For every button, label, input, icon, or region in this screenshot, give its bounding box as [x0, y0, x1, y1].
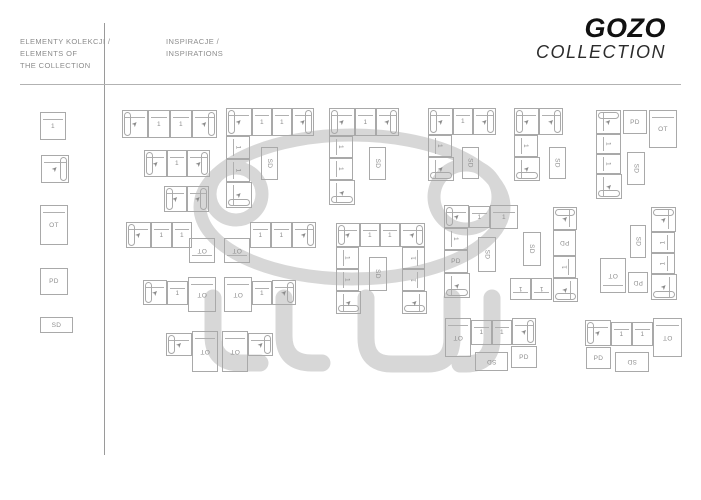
orientation-arrow-icon: ➤ — [534, 105, 567, 138]
module-seat: 1 — [596, 134, 621, 154]
module-label: 1 — [654, 232, 673, 254]
module-arm: ➤ — [428, 108, 453, 135]
module-label: SD — [362, 156, 393, 171]
orientation-arrow-icon: ➤ — [287, 106, 320, 139]
module-label: 1 — [491, 206, 517, 228]
orientation-arrow-icon: ➤ — [425, 153, 458, 186]
module-seat: 1 — [336, 247, 359, 269]
module-label: 1 — [152, 223, 171, 247]
module-label: PD — [587, 348, 610, 368]
orientation-arrow-icon: ➤ — [288, 219, 321, 252]
module-label: 1 — [493, 321, 511, 344]
module-seat: 1 — [40, 112, 66, 140]
module-label: 1 — [41, 113, 65, 139]
module-arm: ➤ — [336, 223, 360, 247]
module-sd: SD — [369, 147, 386, 180]
collection-name: GOZO — [536, 14, 666, 42]
module-label: 1 — [251, 223, 270, 247]
module-label: 1 — [633, 323, 652, 345]
module-arm: ➤ — [402, 291, 427, 314]
module-label: SD — [254, 156, 285, 171]
orientation-arrow-icon: ➤ — [37, 151, 74, 188]
orientation-arrow-icon: ➤ — [333, 287, 364, 318]
module-arm: ➤ — [192, 110, 217, 138]
header-divider-line — [20, 84, 681, 85]
orientation-arrow-icon: ➤ — [581, 316, 615, 350]
module-label: SD — [471, 247, 504, 263]
module-seat: 1 — [360, 223, 380, 247]
module-label: OT — [650, 111, 676, 147]
module-arm: ➤ — [292, 108, 314, 136]
module-seat: 1 — [148, 110, 170, 138]
module-pouf: PD — [623, 110, 647, 134]
module-seat: 1 — [632, 322, 653, 346]
module-label: 1 — [470, 207, 489, 227]
module-sd: SD — [549, 147, 566, 179]
module-label: PD — [512, 347, 536, 367]
module-label: 1 — [446, 228, 466, 250]
module-arm: ➤ — [444, 205, 469, 228]
module-sd: SD — [462, 147, 479, 179]
orientation-arrow-icon: ➤ — [440, 269, 473, 302]
orientation-arrow-icon: ➤ — [468, 105, 501, 138]
module-label: 1 — [404, 248, 424, 269]
module-label: SD — [543, 156, 573, 171]
module-arm: ➤ — [292, 222, 316, 248]
module-label: SD — [456, 156, 486, 171]
module-label: 1 — [228, 137, 249, 159]
module-seat: 1 — [510, 278, 531, 300]
inspirations-title: INSPIRACJE / INSPIRATIONS — [166, 36, 223, 60]
orientation-arrow-icon: ➤ — [187, 107, 222, 142]
module-seat: 1 — [651, 232, 675, 253]
sidebar-title-line: THE COLLECTION — [20, 60, 115, 72]
module-label: 1 — [253, 109, 271, 135]
module-label: 1 — [149, 111, 169, 137]
module-arm: ➤ — [553, 207, 577, 230]
module-sd: SD — [261, 147, 278, 180]
module-label: 1 — [532, 279, 551, 299]
module-arm: ➤ — [400, 223, 425, 247]
module-seat: 1 — [167, 281, 188, 305]
module-arm: ➤ — [473, 108, 496, 135]
module-seat: 1 — [226, 136, 250, 159]
module-ottoman: OT — [40, 205, 68, 245]
module-pouf: PD — [628, 272, 648, 293]
module-arm: ➤ — [248, 333, 273, 356]
orientation-arrow-icon: ➤ — [245, 329, 276, 360]
orientation-arrow-icon: ➤ — [222, 178, 256, 212]
orientation-arrow-icon: ➤ — [163, 329, 195, 361]
module-arm: ➤ — [226, 108, 252, 136]
module-arm: ➤ — [651, 207, 676, 232]
module-label: 1 — [472, 321, 491, 344]
module-arm: ➤ — [376, 108, 399, 136]
module-sd: SD — [369, 257, 387, 291]
orientation-arrow-icon: ➤ — [182, 183, 213, 214]
module-ottoman: OT — [192, 331, 218, 372]
module-arm: ➤ — [122, 110, 148, 138]
module-seat: 1 — [490, 205, 518, 229]
module-label: 1 — [338, 248, 358, 269]
sidebar-title: ELEMENTY KOLEKCJI / ELEMENTS OF THE COLL… — [20, 36, 115, 72]
module-sd: SD — [630, 225, 646, 258]
brand-block: GOZO COLLECTION — [536, 14, 666, 62]
module-pouf: PD — [511, 346, 537, 368]
module-seat: 1 — [151, 222, 172, 248]
module-seat: 1 — [471, 320, 492, 345]
module-label: 1 — [612, 323, 631, 345]
module-label: SD — [623, 235, 654, 249]
module-arm: ➤ — [596, 174, 622, 199]
collection-label: COLLECTION — [536, 42, 666, 62]
module-arm: ➤ — [329, 108, 355, 136]
inspirations-title-line: INSPIRATIONS — [166, 48, 223, 60]
module-arm: ➤ — [187, 150, 210, 177]
module-seat: 1 — [329, 136, 353, 158]
module-seat: 1 — [531, 278, 552, 300]
module-seat: 1 — [250, 222, 271, 248]
module-sd: SD — [478, 237, 496, 272]
module-ottoman: OT — [188, 277, 216, 312]
module-label: OT — [193, 332, 217, 371]
module-ottoman: OT — [224, 277, 252, 312]
module-arm: ➤ — [651, 274, 677, 300]
module-arm: ➤ — [226, 182, 252, 208]
module-label: SD — [476, 353, 507, 370]
module-ottoman: OT — [445, 318, 471, 357]
module-arm: ➤ — [444, 273, 470, 298]
module-seat: 1 — [402, 247, 425, 269]
module-arm: ➤ — [144, 150, 167, 177]
module-label: 1 — [168, 282, 187, 304]
module-arm: ➤ — [512, 318, 536, 345]
module-sd: SD — [627, 152, 645, 185]
module-arm: ➤ — [41, 155, 69, 183]
module-arm: ➤ — [187, 186, 209, 212]
orientation-arrow-icon: ➤ — [268, 277, 300, 309]
module-arm: ➤ — [143, 280, 167, 305]
module-label: SD — [41, 318, 72, 332]
module-arm: ➤ — [514, 157, 540, 181]
module-ottoman: OT — [224, 238, 250, 263]
module-label: OT — [654, 319, 681, 356]
module-ottoman: OT — [222, 331, 248, 372]
module-label: OT — [601, 259, 625, 292]
orientation-arrow-icon: ➤ — [550, 274, 582, 306]
module-label: PD — [41, 269, 67, 294]
module-label: 1 — [511, 279, 530, 299]
module-seat: 1 — [444, 228, 468, 250]
orientation-arrow-icon: ➤ — [182, 147, 215, 180]
module-ottoman: OT — [653, 318, 682, 357]
module-arm: ➤ — [585, 320, 611, 346]
module-label: PD — [624, 111, 646, 133]
module-seat: 1 — [252, 108, 272, 136]
module-seat: 1 — [611, 322, 632, 346]
module-arm: ➤ — [539, 108, 563, 135]
catalog-page: ELEMENTY KOLEKCJI / ELEMENTS OF THE COLL… — [0, 0, 701, 500]
module-arm: ➤ — [126, 222, 151, 248]
module-sd: SD — [40, 317, 73, 333]
module-arm: ➤ — [428, 157, 454, 181]
module-ottoman: OT — [649, 110, 677, 148]
module-arm: ➤ — [553, 278, 578, 302]
module-sd: SD — [523, 232, 541, 266]
module-pouf: PD — [586, 347, 611, 369]
sidebar-title-line: ELEMENTY KOLEKCJI / — [20, 36, 115, 48]
module-pouf: PD — [553, 230, 576, 256]
module-ottoman: OT — [600, 258, 626, 293]
module-label: OT — [225, 239, 249, 262]
orientation-arrow-icon: ➤ — [371, 105, 404, 138]
module-label: PD — [629, 273, 647, 292]
orientation-arrow-icon: ➤ — [647, 270, 681, 304]
orientation-arrow-icon: ➤ — [511, 153, 544, 186]
module-label: PD — [554, 231, 575, 255]
orientation-arrow-icon: ➤ — [332, 219, 363, 250]
module-sd: SD — [615, 352, 649, 372]
module-label: SD — [516, 241, 548, 257]
module-label: SD — [362, 266, 394, 282]
module-label: OT — [41, 206, 67, 244]
module-label: 1 — [331, 136, 351, 158]
orientation-arrow-icon: ➤ — [399, 287, 430, 318]
module-arm: ➤ — [272, 280, 296, 305]
inspirations-title-line: INSPIRACJE / — [166, 36, 223, 48]
orientation-arrow-icon: ➤ — [325, 176, 358, 209]
module-ottoman: OT — [189, 238, 215, 263]
module-sd: SD — [475, 352, 508, 371]
configurations-canvas: 1➤OTPDSD➤11➤➤1➤➤➤➤11➤11➤SD➤1➤11➤SD➤1➤1➤S… — [0, 0, 701, 500]
module-arm: ➤ — [596, 110, 621, 134]
module-label: OT — [446, 319, 470, 356]
module-seat: 1 — [469, 206, 490, 228]
module-label: OT — [225, 278, 251, 311]
sidebar-title-line: ELEMENTS OF — [20, 48, 115, 60]
module-arm: ➤ — [166, 333, 192, 356]
module-arm: ➤ — [336, 291, 361, 314]
orientation-arrow-icon: ➤ — [507, 315, 540, 348]
module-label: 1 — [361, 224, 379, 246]
module-arm: ➤ — [329, 180, 355, 205]
module-label: SD — [621, 161, 652, 177]
module-label: OT — [190, 239, 214, 262]
sidebar-divider-line — [104, 23, 105, 455]
module-label: OT — [189, 278, 215, 311]
module-label: OT — [223, 332, 247, 371]
module-label: SD — [616, 353, 648, 371]
module-pouf: PD — [40, 268, 68, 295]
